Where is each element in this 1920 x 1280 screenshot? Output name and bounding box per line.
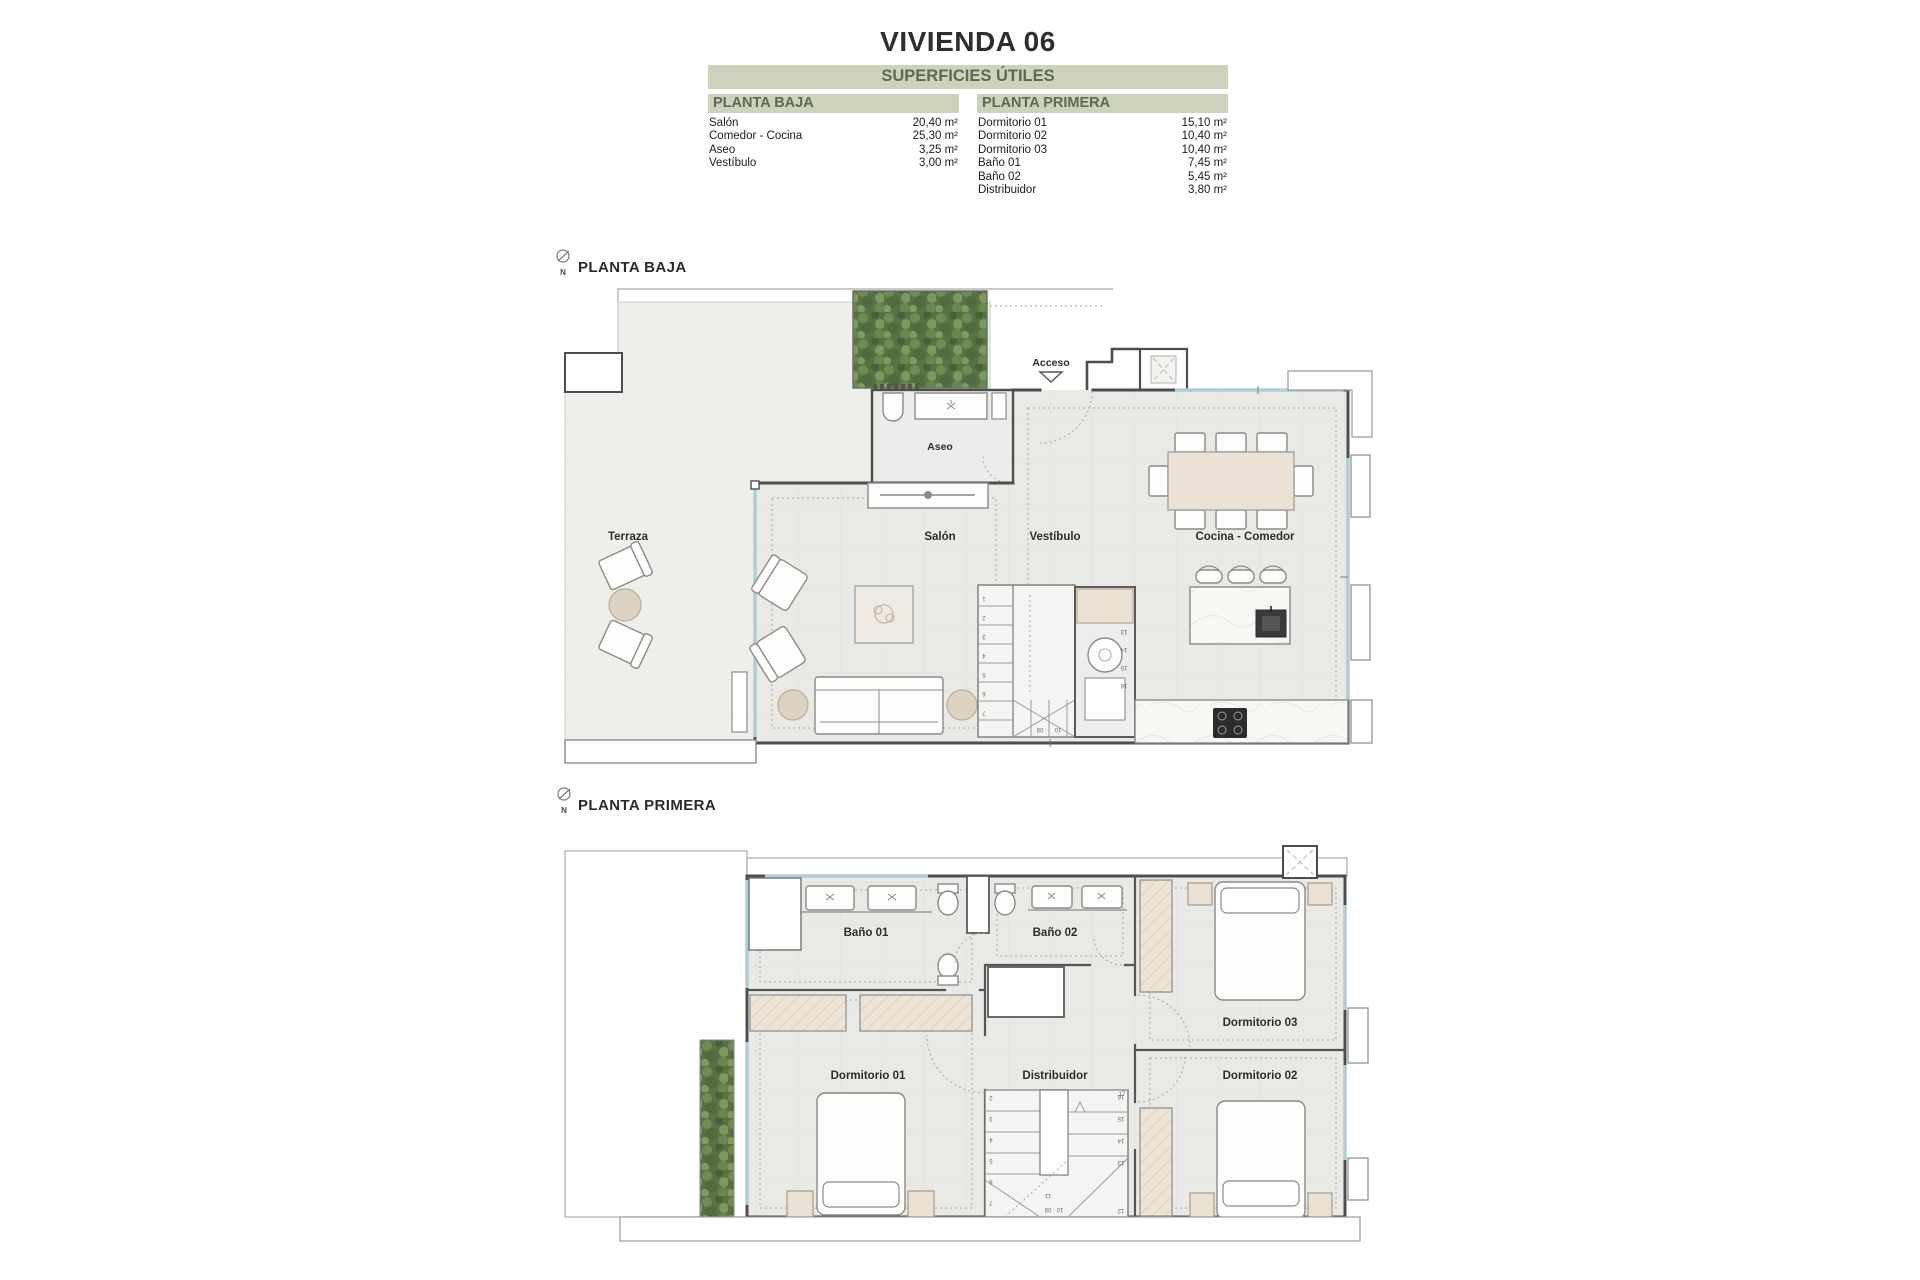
- green-wall: [700, 1040, 734, 1217]
- wardrobe: [1140, 1108, 1172, 1216]
- terrace-table: [609, 589, 641, 621]
- room-label: Dormitorio 03: [978, 144, 1047, 157]
- shaft-skylight: [1283, 846, 1317, 878]
- first-plan-title: PLANTA PRIMERA: [578, 797, 716, 814]
- area-value: 20,40 m²: [913, 117, 958, 130]
- surfaces-table: VIVIENDA 06 SUPERFICIES ÚTILES PLANTA BA…: [708, 26, 1228, 197]
- area-row: Dormitorio 03 10,40 m²: [977, 144, 1228, 157]
- room-label-terraza: Terraza: [608, 531, 649, 543]
- room-label-dorm3: Dormitorio 03: [1223, 1017, 1298, 1029]
- room-label: Baño 01: [978, 157, 1021, 170]
- area-value: 25,30 m²: [913, 130, 958, 143]
- glazing-junction: [751, 481, 759, 489]
- column-header: PLANTA BAJA: [708, 94, 959, 113]
- porch-wall: [1087, 349, 1140, 390]
- nightstand: [908, 1191, 934, 1217]
- window-jamb: [1351, 585, 1370, 660]
- column-planta-primera: PLANTA PRIMERA Dormitorio 01 15,10 m² Do…: [977, 94, 1228, 197]
- area-row: Vestíbulo 3,00 m²: [708, 157, 959, 170]
- area-row: Distribuidor 3,80 m²: [977, 184, 1228, 197]
- area-row: Baño 01 7,45 m²: [977, 157, 1228, 170]
- plant-bed: [853, 291, 987, 388]
- room-label: Salón: [709, 117, 738, 130]
- room-label-dorm1: Dormitorio 01: [831, 1070, 906, 1082]
- pillow: [823, 1182, 899, 1207]
- stair-step-number: 10: [1054, 726, 1061, 732]
- room-label-vestibulo: Vestíbulo: [1029, 531, 1080, 543]
- nightstand: [1308, 1193, 1332, 1217]
- area-row: Aseo 3,25 m²: [708, 144, 959, 157]
- page-title: VIVIENDA 06: [708, 26, 1228, 58]
- area-value: 15,10 m²: [1182, 117, 1227, 130]
- aseo-cabinet: [992, 393, 1006, 419]
- wardrobe: [1140, 880, 1172, 992]
- compass-icon: N: [557, 250, 569, 277]
- plan-sheet: N PLANTA BAJA Acceso: [0, 0, 1920, 1280]
- shower: [749, 878, 801, 950]
- area-row: Comedor - Cocina 25,30 m²: [708, 130, 959, 143]
- area-value: 10,40 m²: [1182, 144, 1227, 157]
- stair-step-number: 10: [1056, 1206, 1063, 1212]
- area-value: 7,45 m²: [1188, 157, 1227, 170]
- stair-step-number: 15: [1120, 664, 1127, 670]
- first-floor-plan: N PLANTA PRIMERA: [558, 788, 1368, 1241]
- compass-north-label: N: [560, 268, 566, 277]
- window-jamb: [1348, 1158, 1368, 1200]
- stair-step-number: 11: [1044, 1192, 1051, 1198]
- room-label: Comedor - Cocina: [709, 130, 802, 143]
- bidet-icon: [938, 954, 958, 985]
- shaft-skylight: [1140, 349, 1187, 390]
- stair-step-number: 09: [1036, 726, 1043, 732]
- stair-step-number: 17: [1119, 1092, 1126, 1098]
- coffee-table: [855, 586, 913, 643]
- stair-step-number: 09: [1044, 1206, 1051, 1212]
- acceso-arrow-icon: [1040, 372, 1062, 382]
- window-jamb: [1351, 455, 1370, 517]
- area-row: Dormitorio 01 15,10 m²: [977, 117, 1228, 130]
- aseo-basin: [883, 393, 903, 421]
- area-value: 3,25 m²: [919, 144, 958, 157]
- window-jamb: [1351, 700, 1372, 743]
- room-label-distribuidor: Distribuidor: [1022, 1070, 1088, 1082]
- nightstand: [787, 1191, 813, 1217]
- area-value: 3,80 m²: [1188, 184, 1227, 197]
- room-label-aseo: Aseo: [927, 441, 953, 453]
- stair-step-number: 15: [1117, 1115, 1124, 1121]
- window-jamb: [1348, 1008, 1368, 1063]
- nightstand: [1308, 883, 1332, 905]
- closet-room: [988, 967, 1064, 1017]
- compass-north-label: N: [561, 806, 567, 815]
- planter-box: [565, 353, 622, 392]
- stair-step-number: 16: [1120, 682, 1127, 688]
- nightstand: [1188, 883, 1212, 905]
- room-label: Vestíbulo: [709, 157, 756, 170]
- room-label-salon: Salón: [924, 531, 955, 543]
- room-label-bano1: Baño 01: [844, 927, 889, 939]
- column-header: PLANTA PRIMERA: [977, 94, 1228, 113]
- aseo-room: Aseo: [872, 390, 1013, 483]
- area-row: Baño 02 5,45 m²: [977, 171, 1228, 184]
- pillow: [1223, 1181, 1299, 1206]
- stair-step-number: 12: [1117, 1207, 1124, 1213]
- room-label-cocina: Cocina - Comedor: [1195, 531, 1295, 543]
- stair-step-number: 14: [1117, 1137, 1124, 1143]
- staircase: 2 3 4 5 6 7 09 10 11 12 13 14 15 16 17: [985, 1090, 1128, 1217]
- room-label-bano2: Baño 02: [1033, 927, 1078, 939]
- area-value: 5,45 m²: [1188, 171, 1227, 184]
- room-label: Dormitorio 02: [978, 130, 1047, 143]
- area-row: Salón 20,40 m²: [708, 117, 959, 130]
- room-label-acceso: Acceso: [1032, 357, 1069, 369]
- area-row: Dormitorio 02 10,40 m²: [977, 130, 1228, 143]
- door-jamb: [732, 672, 747, 732]
- wardrobe: [860, 995, 972, 1031]
- cooktop: [1213, 708, 1247, 738]
- roof-band: [747, 858, 1347, 876]
- dining-table: [1168, 452, 1294, 510]
- room-label: Baño 02: [978, 171, 1021, 184]
- toilet-icon: [995, 884, 1015, 915]
- kitchen-island: [1190, 587, 1290, 644]
- media-console: [868, 483, 988, 508]
- lower-floor-outline: [620, 1217, 1360, 1241]
- surfaces-header-band: SUPERFICIES ÚTILES: [708, 65, 1228, 89]
- area-value: 10,40 m²: [1182, 130, 1227, 143]
- stair-step-number: 13: [1120, 628, 1127, 634]
- sink: [868, 886, 916, 910]
- room-label: Aseo: [709, 144, 735, 157]
- area-value: 3,00 m²: [919, 157, 958, 170]
- kitchen-counter: [1135, 700, 1348, 743]
- nightstand: [1190, 1193, 1214, 1217]
- ground-floor-plan: N PLANTA BAJA Acceso: [557, 250, 1372, 763]
- duct-shaft: [967, 876, 989, 933]
- room-label-dorm2: Dormitorio 02: [1223, 1070, 1298, 1082]
- staircase: 1 2 3 4 5 6 7 09 10 11: [978, 585, 1079, 737]
- wardrobe: [750, 995, 846, 1031]
- side-table: [947, 690, 977, 720]
- stair-step-number: 14: [1120, 646, 1127, 652]
- sink: [806, 886, 854, 910]
- ground-plan-title: PLANTA BAJA: [578, 259, 687, 276]
- compass-icon: N: [558, 788, 570, 815]
- pillow: [1221, 888, 1299, 913]
- toilet-icon: [938, 884, 958, 915]
- room-label: Distribuidor: [978, 184, 1036, 197]
- laundry-room: 13 14 15 16: [1075, 587, 1135, 737]
- stair-step-number: 13: [1117, 1159, 1124, 1165]
- column-planta-baja: PLANTA BAJA Salón 20,40 m² Comedor - Coc…: [708, 94, 959, 197]
- room-label: Dormitorio 01: [978, 117, 1047, 130]
- sofa: [815, 677, 943, 734]
- terrace-step: [565, 740, 756, 763]
- washer-icon: [1088, 638, 1122, 672]
- side-table: [778, 690, 808, 720]
